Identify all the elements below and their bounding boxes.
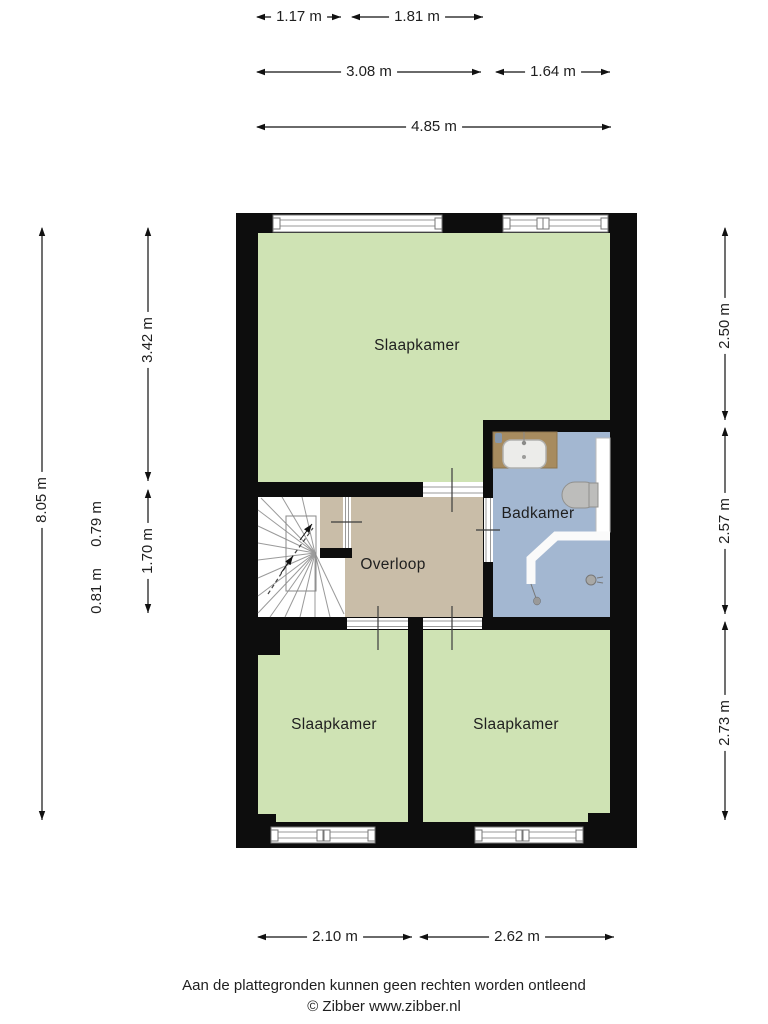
wall-stair-stub bbox=[318, 548, 352, 558]
dim-label-top-5: 4.85 m bbox=[406, 118, 462, 136]
dim-label-right-1: 2.50 m bbox=[716, 298, 734, 354]
dim-label-left-outer: 8.05 m bbox=[33, 472, 51, 528]
wall-bedroom-divider bbox=[408, 617, 423, 822]
room-label-bedroom-right: Slaapkamer bbox=[473, 716, 559, 734]
wall-top-left-corner bbox=[258, 213, 273, 233]
floorplan-page: 1.17 m 1.81 m 3.08 m 1.64 m 4.85 m 8.05 … bbox=[0, 0, 768, 1024]
bedroom-top-floor bbox=[258, 233, 483, 482]
room-label-landing: Overloop bbox=[360, 556, 425, 574]
room-label-bedroom-top: Slaapkamer bbox=[374, 337, 460, 355]
footer-disclaimer: Aan de plattegronden kunnen geen rechten… bbox=[0, 977, 768, 994]
wall-bedroom-top-bottom bbox=[258, 482, 423, 497]
floorplan-drawing bbox=[0, 0, 768, 1024]
wall-right bbox=[610, 213, 637, 848]
room-label-bedroom-left: Slaapkamer bbox=[291, 716, 377, 734]
dim-label-left-170: 1.70 m bbox=[139, 523, 157, 579]
shower-head-icon bbox=[534, 597, 541, 605]
footer-copyright: © Zibber www.zibber.nl bbox=[0, 998, 768, 1015]
dim-label-bottom-1: 2.10 m bbox=[307, 928, 363, 946]
dim-label-right-2: 2.57 m bbox=[716, 493, 734, 549]
wall-notch-bedroom-left-top bbox=[258, 630, 280, 655]
room-label-bathroom: Badkamer bbox=[501, 505, 574, 523]
dim-label-top-1: 1.17 m bbox=[271, 8, 327, 26]
dim-label-top-3: 3.08 m bbox=[341, 63, 397, 81]
window-icon bbox=[271, 827, 375, 843]
wall-left bbox=[236, 213, 258, 848]
window-icon bbox=[503, 215, 608, 232]
dim-label-right-3: 2.73 m bbox=[716, 695, 734, 751]
wall-bathroom-top bbox=[483, 420, 610, 432]
wall-notch-bedroom-left-bottom bbox=[258, 814, 276, 822]
window-icon bbox=[475, 827, 583, 843]
bedroom-top-floor-right bbox=[483, 233, 610, 420]
sink-icon bbox=[493, 432, 557, 468]
dim-label-left-079: 0.79 m bbox=[88, 496, 106, 552]
dim-label-top-2: 1.81 m bbox=[389, 8, 445, 26]
dim-label-top-4: 1.64 m bbox=[525, 63, 581, 81]
window-icon bbox=[273, 215, 442, 232]
dim-label-bottom-2: 2.62 m bbox=[489, 928, 545, 946]
dim-label-left-342: 3.42 m bbox=[139, 312, 157, 368]
dim-label-left-081: 0.81 m bbox=[88, 563, 106, 619]
wall-notch-bedroom-right-bottom bbox=[588, 813, 610, 822]
